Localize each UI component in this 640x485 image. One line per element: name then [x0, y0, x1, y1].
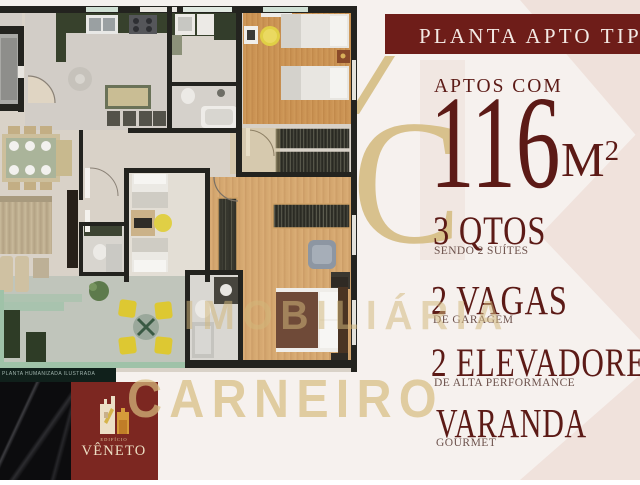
svg-text:VÊNETO: VÊNETO [82, 442, 147, 459]
svg-text:EDIFÍCIO: EDIFÍCIO [100, 437, 127, 442]
